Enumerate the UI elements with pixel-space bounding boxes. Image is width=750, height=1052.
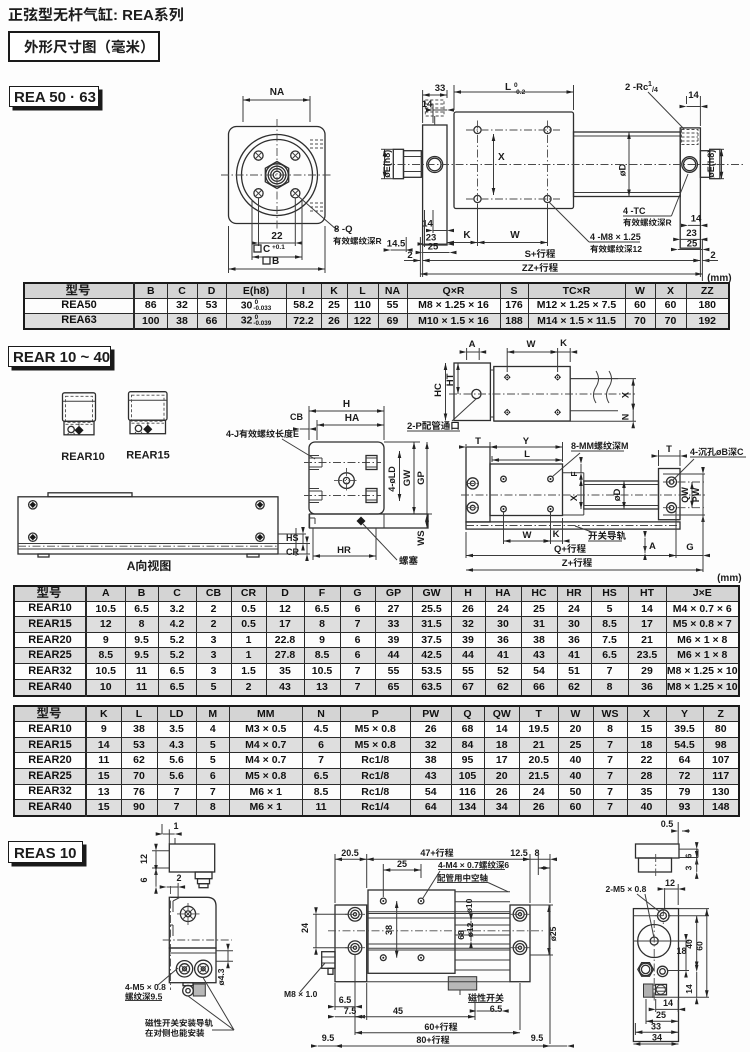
svg-text:: REA: : REA [113,7,154,24]
svg-text:6.5: 6.5 [339,995,352,1005]
svg-text:9.5: 9.5 [322,1033,335,1043]
svg-text:X: X [621,391,632,398]
svg-text:ø12: ø12 [465,922,475,937]
svg-text:E: E [293,429,299,439]
svg-text:GP: GP [416,471,427,485]
svg-text:T: T [666,444,672,455]
svg-text:2: 2 [710,250,715,261]
svg-text:20.5: 20.5 [341,848,359,858]
svg-text:W: W [527,339,536,350]
svg-text:REAR15: REAR15 [126,450,169,462]
svg-text:B: B [272,256,279,267]
svg-text:(mm): (mm) [707,273,731,284]
svg-text:38: 38 [384,925,394,935]
svg-text:HR: HR [337,545,351,556]
svg-text:L: L [505,82,511,93]
svg-text:60: 60 [695,941,705,951]
svg-text:14: 14 [422,219,433,230]
svg-text:K: K [560,338,567,349]
svg-text:REAR10: REAR10 [61,451,104,463]
svg-text:C: C [737,447,744,457]
svg-text:3: 3 [684,865,694,870]
svg-text:23: 23 [686,228,697,239]
svg-text:6: 6 [139,877,149,882]
svg-text:G: G [686,542,693,553]
svg-text:14: 14 [663,998,673,1008]
svg-text:34: 34 [652,1033,662,1043]
svg-text:14: 14 [688,90,699,101]
svg-text:R: R [376,236,382,246]
svg-text:+0.1: +0.1 [272,244,285,251]
svg-text:6: 6 [684,853,694,858]
svg-text:14.5: 14.5 [387,239,406,250]
svg-text:R: R [666,218,672,228]
svg-text:W: W [510,230,520,241]
svg-text:12: 12 [633,244,643,254]
svg-text:NA: NA [270,87,284,98]
svg-text:REAR 10 ~ 40: REAR 10 ~ 40 [13,349,110,366]
svg-text:øE(h8): øE(h8) [706,150,716,178]
svg-text:25: 25 [687,239,698,250]
svg-text:F: F [569,471,579,476]
svg-text:14: 14 [691,214,702,225]
svg-text:22: 22 [271,231,283,242]
svg-text:12: 12 [665,878,675,888]
svg-text:A: A [127,559,136,573]
svg-text:25: 25 [656,1010,666,1020]
svg-text:H: H [343,399,350,410]
svg-text:T: T [475,436,481,447]
svg-text:2-P: 2-P [407,421,422,432]
svg-text:S+: S+ [525,249,537,260]
svg-text:CB: CB [290,412,303,422]
svg-text:K: K [553,529,560,540]
svg-text:L: L [524,449,530,460]
svg-text:47+: 47+ [420,848,435,858]
svg-text:QW: QW [680,487,690,503]
svg-text:W: W [523,530,532,541]
svg-text:ø4.3: ø4.3 [216,968,226,985]
svg-text:4-M4 × 0.7: 4-M4 × 0.7 [438,860,479,870]
svg-text:PW: PW [691,487,701,502]
svg-text:øB: øB [716,447,728,457]
svg-text:14: 14 [684,984,694,994]
svg-text:X: X [498,152,505,163]
svg-text:HS: HS [286,533,299,543]
svg-text:Z+: Z+ [562,558,574,569]
svg-text:øD: øD [612,488,623,501]
svg-text:12: 12 [139,854,149,864]
svg-text:A: A [469,339,476,350]
svg-text:33: 33 [435,83,446,94]
svg-text:0: 0 [514,82,518,89]
svg-text:/4: /4 [652,87,658,94]
svg-text:8-MM: 8-MM [571,441,594,451]
svg-text:25: 25 [397,859,407,869]
svg-text:60+: 60+ [424,1022,439,1032]
svg-text:6.5: 6.5 [490,1004,503,1014]
svg-text:REAS 10: REAS 10 [14,845,77,862]
svg-text:4-øLD: 4-øLD [387,466,397,492]
svg-text:-0.2: -0.2 [514,89,526,96]
svg-text:80+: 80+ [416,1035,431,1045]
svg-text:øE(h8): øE(h8) [382,150,392,178]
svg-text:M: M [621,441,629,451]
svg-text:ZZ+: ZZ+ [522,263,540,274]
svg-text:REA 50 · 63: REA 50 · 63 [14,89,96,106]
svg-text:C: C [263,244,270,255]
svg-text:6: 6 [504,860,509,870]
svg-text:WS: WS [416,530,427,545]
svg-text:HA: HA [345,413,359,424]
svg-text:24: 24 [300,923,310,933]
svg-text:2: 2 [177,873,182,883]
svg-text:7.5: 7.5 [344,1006,357,1016]
svg-text:4 -TC: 4 -TC [623,206,646,216]
svg-text:A: A [649,541,656,552]
svg-text:12.5: 12.5 [510,848,528,858]
svg-text:9.5: 9.5 [531,1033,544,1043]
svg-text:K: K [463,230,471,241]
svg-text:40: 40 [684,939,694,949]
svg-text:N: N [621,414,631,421]
svg-text:HT: HT [445,373,456,386]
svg-text:4-J: 4-J [226,429,239,439]
svg-text:Y: Y [523,436,530,447]
svg-text:X: X [569,494,580,501]
svg-text:33: 33 [651,1022,661,1032]
svg-text:0.5: 0.5 [661,819,674,829]
svg-text:GW: GW [402,470,413,486]
svg-text:Q+: Q+ [554,544,567,555]
svg-text:CR: CR [286,547,299,557]
svg-text:1: 1 [174,821,179,831]
svg-text:2 -Rc: 2 -Rc [625,82,648,93]
svg-text:14: 14 [422,99,433,110]
svg-text:2-M5 × 0.8: 2-M5 × 0.8 [606,884,647,894]
svg-text:øD: øD [618,163,629,176]
svg-text:4-: 4- [690,447,698,457]
svg-text:8 -Q: 8 -Q [334,224,352,235]
svg-text:2: 2 [407,250,412,261]
svg-text:ø10: ø10 [464,898,474,913]
svg-text:HC: HC [433,383,444,397]
svg-text:(mm): (mm) [717,573,741,584]
svg-text:45: 45 [393,1006,403,1016]
svg-text:4 -M8 × 1.25: 4 -M8 × 1.25 [590,232,641,242]
svg-text:25: 25 [428,242,439,253]
